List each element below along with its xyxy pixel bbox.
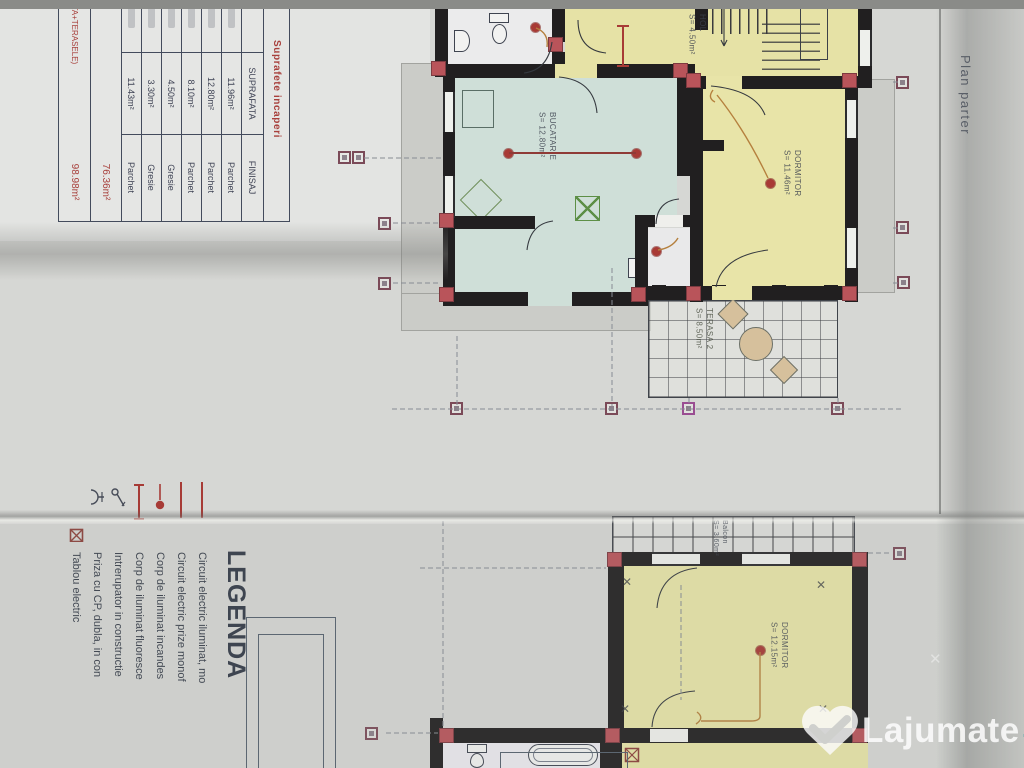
legend-item: Circuit electric iluminat, mo [192,478,213,768]
paper-right-fold [936,9,1024,768]
hol-label: HOL S= 4.50m² [686,14,707,55]
balcon-label: Balcon S= 3.60m² [711,520,729,556]
suprafata-header: SUPRAFATA [242,53,263,135]
axis-marker [365,727,378,740]
column-marker [606,729,619,742]
door-opening [655,215,683,227]
legend-item: Priza cu CP, dubla, in con [87,478,108,768]
axis-marker [831,402,844,415]
suprafata-cell: 11.43m² [122,53,141,135]
ceiling-lamp [756,646,765,655]
toilet-bowl [492,24,507,44]
door-opening [650,729,688,742]
room-areas-table: Suprafete incaperi SUPRAFATA FINISAJ 11.… [58,0,290,226]
table-row: 11.96m²Parchet [221,0,241,221]
lajumate-logo-icon [798,702,862,760]
photographed-floor-plan: Suprafete incaperi SUPRAFATA FINISAJ 11.… [0,0,1024,768]
incandescent-lamp-icon [155,478,167,542]
table-title: Suprafete incaperi [271,0,282,221]
axis-marker [682,402,695,415]
pergola-column [824,285,838,300]
finisaj-cell: Parchet [202,135,221,220]
column-marker [440,288,453,301]
fold-note: Plan parter [958,55,973,300]
legend-item-label: Priza cu CP, dubla, in con [92,552,104,677]
table-row: 3.30m²Gresie [141,0,161,221]
switch-icon [111,478,127,542]
column-marker [843,74,856,87]
column-marker [549,38,562,51]
axis-marker [605,402,618,415]
total-label: (CONSTRUITA+TERASELE) [70,0,79,143]
axis-marker [896,221,909,234]
table-row: 11.43m²Parchet [121,0,141,221]
fluorescent-lamp-icon [133,478,147,542]
table-total-row: (CONSTRUITA+TERASELE)98.98m² [59,0,90,221]
legend-item: Corp de iluminat fluoresce [129,478,150,768]
finisaj-cell: Parchet [182,135,201,220]
finisaj-cell: Gresie [142,135,161,220]
window [845,228,858,268]
suprafata-cell: 11.96m² [222,53,241,135]
legend-item-label: Tablou electric [71,552,83,622]
axis-marker [378,277,391,290]
table-row: 12.80m²Parchet [201,0,221,221]
ceiling-lamp [766,179,775,188]
legend-item-label: Circuit electric iluminat, mo [197,552,209,683]
window [652,552,700,566]
legend-item-label: Intrerupator in constructie [113,552,125,677]
ceiling-lamp [632,149,641,158]
sink-unit [575,196,600,221]
legend-item: Circuit electric prize monof [171,478,192,768]
electric-panel-icon [69,478,84,542]
window [858,30,872,66]
pen-cross-mark: ✕ [929,650,942,668]
legend-item: Intrerupator in constructie [108,478,129,768]
wall [690,76,703,302]
furniture-outline [462,90,494,128]
stair-railing [800,6,828,60]
door-opening [706,76,742,89]
corner-mark: ✕ [622,575,632,589]
suprafata-cell: 4.50m² [162,53,181,135]
column-marker [687,287,700,300]
foundation-apron [858,80,894,292]
dormitor-etaj-label: DORMITOR S= 12.15m² [768,622,789,669]
axis-marker [352,151,365,164]
terrace-table [739,327,773,361]
legend-item-label: Corp de iluminat incandes [155,552,167,679]
column-marker [440,729,453,742]
column-marker [843,287,856,300]
photo-top-band [0,0,1024,9]
corner-mark: ✕ [816,578,826,592]
dormitor-room [703,89,845,289]
circuit-line-icon [202,478,204,542]
wall [430,718,443,768]
paper-fold-line [939,9,941,514]
toilet-tank [489,13,509,23]
balcon-tiles [612,516,855,554]
window [742,552,790,566]
legend-items: Circuit electric iluminat, mo Circuit el… [66,478,213,768]
sink [454,30,470,52]
legend-block: LEGENDA Circuit electric iluminat, mo Ci… [53,478,250,768]
column-marker [608,553,621,566]
table-total-row: UTILA76.36m² [90,0,121,221]
window [443,176,455,218]
watermark: Lajumate.ro [798,702,1024,760]
ceiling-lamp [652,247,661,256]
bucatarie-room-extension [455,220,635,292]
toilet-bowl [470,753,484,768]
door-opening [528,292,572,306]
table-row: 4.50m²Gresie [161,0,181,221]
table-column-headers: SUPRAFATA FINISAJ [241,0,263,221]
legend-item-label: Corp de iluminat fluoresce [134,552,146,680]
ceiling-lamp [531,23,540,32]
bucatarie-label: BUCATARIE S= 12.80m² [536,112,557,160]
stamp-box-inner [258,634,324,768]
detail-box [500,752,628,768]
pergola-column [772,285,786,300]
dormitor-label: DORMITOR S= 11.46m² [781,150,802,197]
total-value: 98.98m² [69,143,80,221]
total-value: 76.36m² [101,143,112,221]
corner-mark: ✕ [620,702,630,716]
axis-marker [450,402,463,415]
pergola-column [652,285,666,300]
circuit-line-icon [181,478,183,542]
column-marker [440,214,453,227]
suprafata-cell: 12.80m² [202,53,221,135]
column-marker [687,74,700,87]
total-label: UTILA [102,0,111,143]
axis-marker [896,76,909,89]
window [443,92,455,132]
legend-item: Corp de iluminat incandes [150,478,171,768]
ceiling-lamp [504,149,513,158]
column-marker [674,64,687,77]
legend-item: Tablou electric [66,478,87,768]
finisaj-cell: Parchet [222,135,241,220]
socket-icon [90,478,106,542]
door-opening [555,64,597,78]
finisaj-header: FINISAJ [242,135,263,220]
wall [443,216,535,229]
terasa-label: TERASA 2 S= 8.50m² [693,308,714,349]
suprafata-cell: 8.10m² [182,53,201,135]
wall-stub [690,140,724,151]
column-marker [432,62,445,75]
column-marker [632,288,645,301]
axis-marker [378,217,391,230]
axis-marker [893,547,906,560]
finisaj-cell: Gresie [162,135,181,220]
table-header-row: Suprafete incaperi [263,0,289,221]
axis-marker [338,151,351,164]
wall [608,552,868,566]
toilet-tank [467,744,487,753]
column-marker [853,553,866,566]
axis-marker [897,276,910,289]
legend-title: LEGENDA [221,550,250,768]
window [845,100,858,138]
door-opening [712,286,752,300]
watermark-brand: Lajumate [862,711,1020,751]
table-row: 8.10m²Parchet [181,0,201,221]
suprafata-cell: 3.30m² [142,53,161,135]
finisaj-cell: Parchet [122,135,141,220]
legend-item-label: Circuit electric prize monof [176,552,188,682]
